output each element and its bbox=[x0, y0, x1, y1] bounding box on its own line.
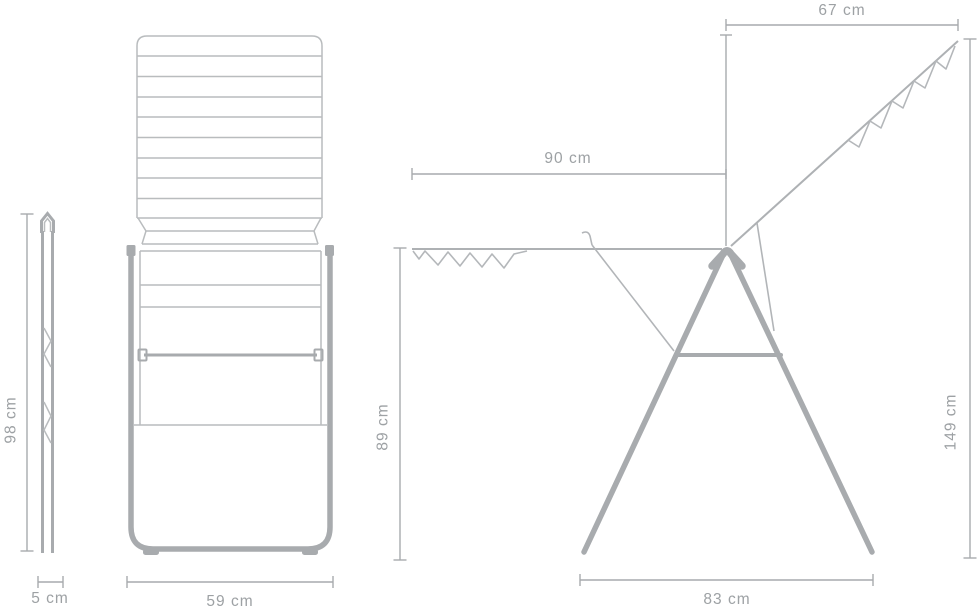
dimension-total-height: 149 cm bbox=[943, 39, 977, 558]
dimension-folded-width: 59 cm bbox=[127, 576, 333, 609]
dimension-base-width: 83 cm bbox=[580, 574, 873, 608]
grid-outline bbox=[137, 36, 322, 218]
foot-left bbox=[143, 549, 159, 555]
view-folded-side: 98 cm 5 cm bbox=[3, 214, 69, 608]
dimension-folded-depth: 5 cm bbox=[31, 576, 69, 607]
dimension-rail-height: 89 cm bbox=[375, 248, 407, 560]
folded-rack-hinge-detail bbox=[44, 328, 51, 367]
label-base-width: 83 cm bbox=[703, 591, 750, 608]
label-total-height: 149 cm bbox=[943, 394, 960, 451]
folded-rack-top-cap-inner bbox=[45, 219, 51, 233]
label-raised-wing: 67 cm bbox=[818, 2, 865, 19]
wing-raised bbox=[731, 41, 958, 246]
label-rail-height: 89 cm bbox=[375, 403, 392, 450]
diagram-canvas: 98 cm 5 cm bbox=[0, 0, 978, 609]
wing-raised-wires bbox=[848, 46, 955, 147]
wing-horizontal-wires bbox=[413, 251, 527, 268]
frame-inner-lines bbox=[134, 251, 327, 425]
a-frame-apex bbox=[712, 251, 742, 266]
drying-rack-dimension-diagram: 98 cm 5 cm bbox=[0, 0, 978, 609]
wing-strut-left bbox=[592, 245, 674, 351]
view-folded-front: 59 cm bbox=[127, 36, 335, 609]
label-folded-height: 98 cm bbox=[3, 396, 20, 443]
label-folded-depth: 5 cm bbox=[31, 590, 69, 607]
folded-rack-top-cap bbox=[42, 214, 54, 234]
foot-right bbox=[302, 549, 318, 555]
dimension-drying-span: 90 cm bbox=[412, 150, 726, 180]
dimension-folded-height: 98 cm bbox=[3, 214, 34, 551]
dimension-raised-wing: 67 cm bbox=[720, 2, 958, 246]
folded-frame bbox=[131, 247, 330, 549]
label-drying-span: 90 cm bbox=[544, 150, 591, 167]
folded-wing-edge bbox=[138, 218, 321, 244]
frame-cross-bar bbox=[139, 350, 323, 361]
frame-cap-left bbox=[127, 245, 136, 256]
view-open-side: 67 cm 90 cm 89 cm 149 cm bbox=[375, 2, 977, 608]
label-folded-width: 59 cm bbox=[206, 593, 253, 609]
folded-rack-hinge-detail bbox=[44, 402, 51, 443]
grid-bars bbox=[137, 56, 322, 218]
wing-strut-hook bbox=[582, 232, 592, 245]
frame-cap-right bbox=[325, 245, 334, 256]
a-frame-legs bbox=[584, 251, 872, 553]
